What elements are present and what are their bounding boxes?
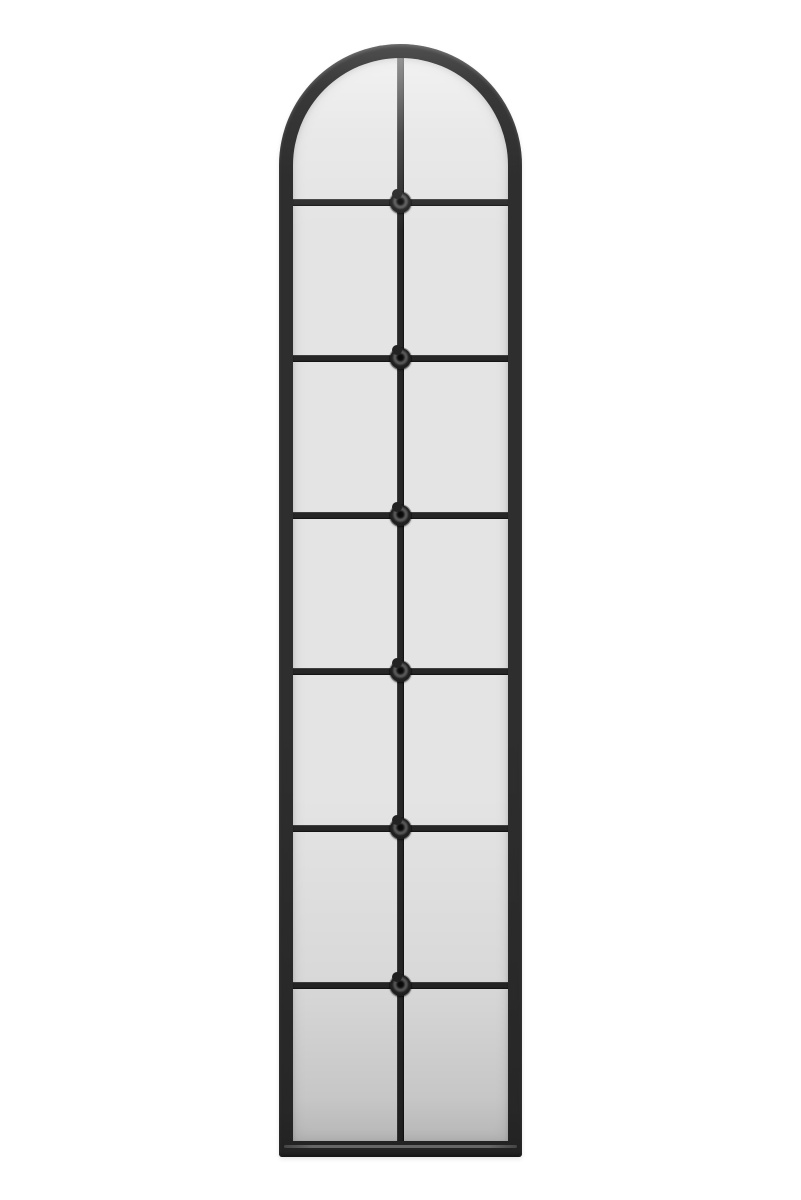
mirror-glass	[293, 58, 508, 1141]
rosette-medallion	[390, 818, 411, 839]
rosette-medallion	[390, 348, 411, 369]
rosette-medallion	[390, 505, 411, 526]
arched-mirror-frame	[279, 44, 522, 1157]
photo-background	[0, 0, 801, 1200]
frame-bottom-highlight	[284, 1145, 517, 1148]
rosette-medallion	[390, 975, 411, 996]
rosette-medallion	[390, 192, 411, 213]
rosette-medallion	[390, 661, 411, 682]
